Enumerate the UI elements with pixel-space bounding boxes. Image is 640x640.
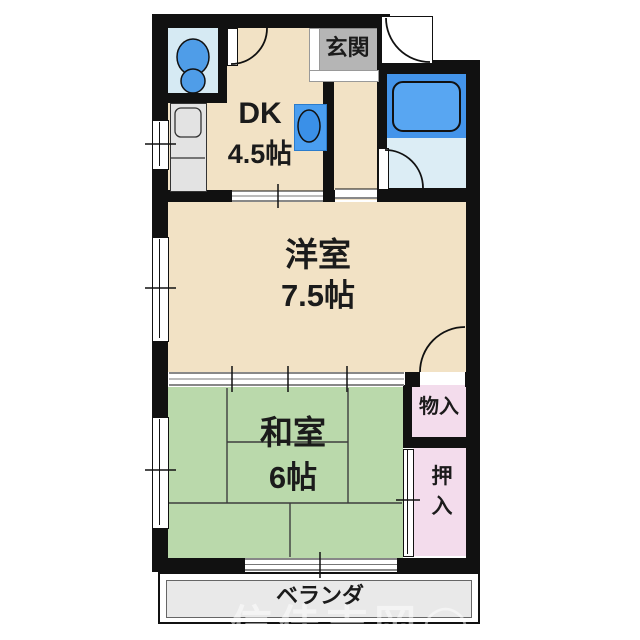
wall-dk-western-b xyxy=(323,190,335,202)
toilet-door-leaf xyxy=(227,28,238,66)
floorplan-canvas: DK 4.5帖 玄関 洋室 7.5帖 和室 6帖 物入 押 入 ベランダ 信佳吉… xyxy=(0,0,640,640)
sliding-door-dk-western xyxy=(232,191,323,201)
wall-storage-closet xyxy=(403,437,466,448)
watermark-logo-mark: ◯ xyxy=(422,602,475,640)
watermark-text: 信佳吉岡◯ xyxy=(230,592,475,640)
window-japanese-veranda xyxy=(245,559,397,571)
wall-bath-bottom xyxy=(377,188,480,202)
western-room-size: 7.5帖 xyxy=(248,280,388,313)
japanese-room-size: 6帖 xyxy=(223,462,363,495)
bathroom-floor xyxy=(387,138,466,188)
bath-door-leaf xyxy=(378,148,389,190)
closet-fusuma-door xyxy=(403,449,414,557)
sliding-doors-western-japanese xyxy=(169,373,404,386)
dk-room-name: DK xyxy=(210,98,310,130)
watermark-characters: 信佳吉岡 xyxy=(230,602,422,640)
japanese-room-name: 和室 xyxy=(223,416,363,451)
storage-doorway xyxy=(420,372,465,385)
storage-label: 物入 xyxy=(412,397,466,418)
wall-japanese-storage xyxy=(403,385,412,437)
entrance-step-bottom xyxy=(309,70,379,82)
opening-hall-western xyxy=(335,189,377,199)
closet-label-char2: 入 xyxy=(427,496,457,518)
wall-western-storage-b xyxy=(465,372,480,387)
western-room-name: 洋室 xyxy=(248,238,388,273)
wall-bottom-b xyxy=(397,558,480,572)
dk-room-size: 4.5帖 xyxy=(200,140,320,168)
window-left-dk xyxy=(152,120,169,170)
bathroom-tub-band xyxy=(387,74,466,138)
wall-bottom-a xyxy=(152,558,245,572)
closet-label-char1: 押 xyxy=(427,466,457,488)
entrance-label: 玄関 xyxy=(318,36,377,59)
window-left-japanese xyxy=(152,417,169,529)
wall-toilet-right xyxy=(218,28,227,93)
entrance-door-area xyxy=(382,16,433,63)
wall-right xyxy=(466,60,480,572)
window-left-western xyxy=(152,237,169,342)
room-toilet xyxy=(168,28,218,93)
wall-top xyxy=(152,14,390,28)
